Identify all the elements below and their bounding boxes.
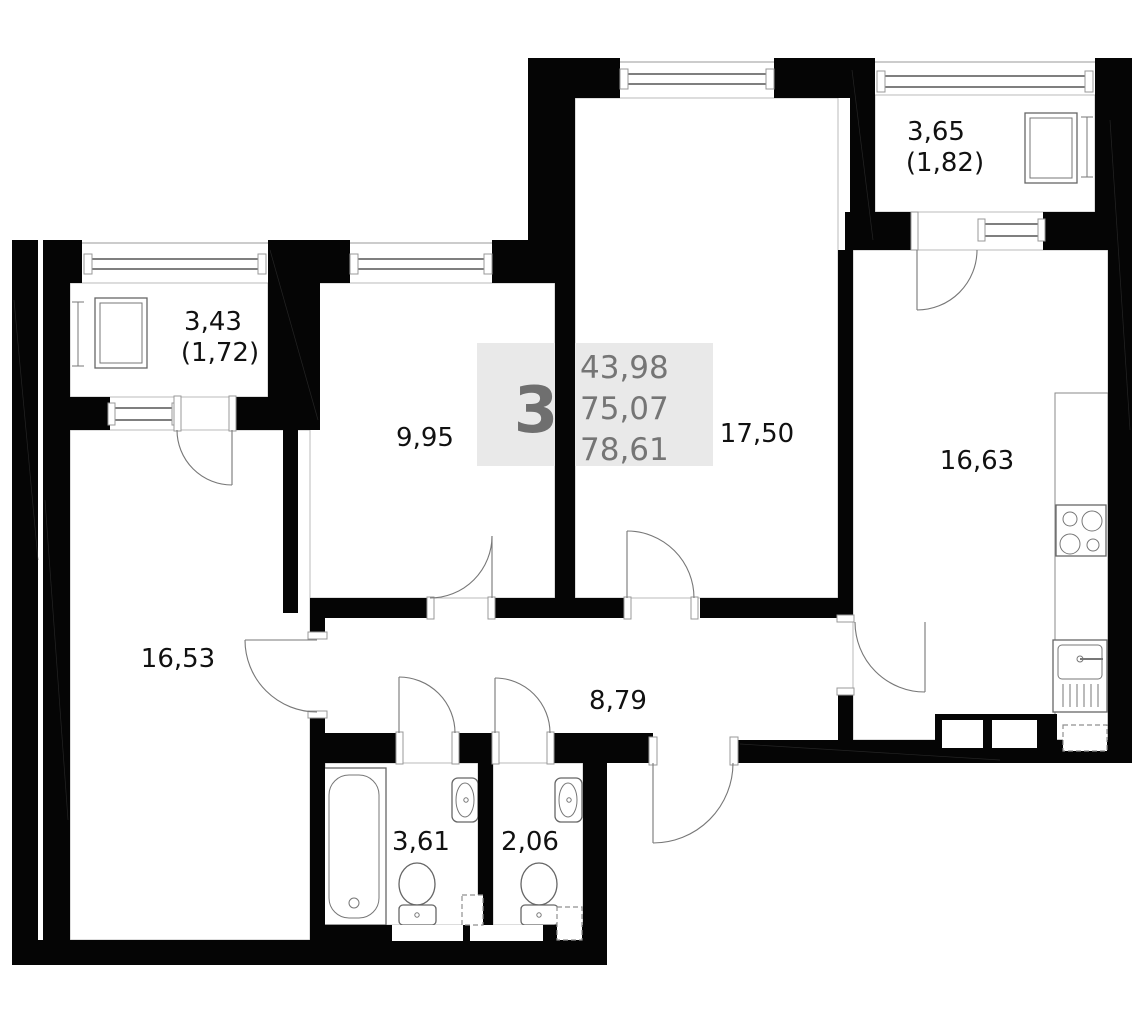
room-label-bedroom: 9,95 xyxy=(396,423,454,453)
door-arc xyxy=(653,763,733,843)
wall-niche xyxy=(942,720,983,748)
stove-icon xyxy=(1056,505,1106,556)
wall-niche xyxy=(992,720,1037,748)
window-icon xyxy=(350,243,492,274)
window-icon xyxy=(108,403,179,425)
summary-rooms-count: 3 xyxy=(514,374,559,448)
toilet-icon xyxy=(521,863,558,925)
sink-icon xyxy=(555,778,582,822)
room-label-balcony-right: 3,65 xyxy=(907,117,965,147)
room-label-balcony-left-reduced: (1,72) xyxy=(181,338,259,368)
window-icon xyxy=(620,62,774,89)
duct-box xyxy=(1063,725,1107,751)
room-label-bedroom-large: 16,53 xyxy=(141,644,215,674)
room-label-kitchen: 16,63 xyxy=(940,446,1014,476)
summary-living-area: 43,98 xyxy=(580,350,669,386)
floor-plan-page: 3,43 (1,72) 3,65 (1,82) 9,95 17,50 16,63… xyxy=(0,0,1145,1022)
room-floor-bedroom-large xyxy=(70,430,310,940)
duct-box xyxy=(462,895,483,925)
sink-icon xyxy=(452,778,478,822)
summary-total-area: 78,61 xyxy=(580,432,669,468)
duct-box xyxy=(557,907,582,940)
window-icon xyxy=(978,219,1045,241)
bathtub-icon xyxy=(322,768,386,925)
room-label-balcony-right-reduced: (1,82) xyxy=(906,148,984,178)
room-label-hallway: 8,79 xyxy=(589,686,647,716)
room-label-balcony-left: 3,43 xyxy=(184,307,242,337)
window-icon xyxy=(82,243,268,274)
room-label-toilet: 2,06 xyxy=(501,827,559,857)
toilet-icon xyxy=(399,863,436,925)
summary-usable-area: 75,07 xyxy=(580,391,669,427)
room-label-bathroom: 3,61 xyxy=(392,827,450,857)
window-icon xyxy=(875,62,1095,92)
floor-plan: 3,43 (1,72) 3,65 (1,82) 9,95 17,50 16,63… xyxy=(0,0,1145,1022)
room-floor-hallway xyxy=(325,618,838,740)
room-label-living-room: 17,50 xyxy=(720,419,794,449)
kitchen-sink-icon xyxy=(1053,640,1107,712)
